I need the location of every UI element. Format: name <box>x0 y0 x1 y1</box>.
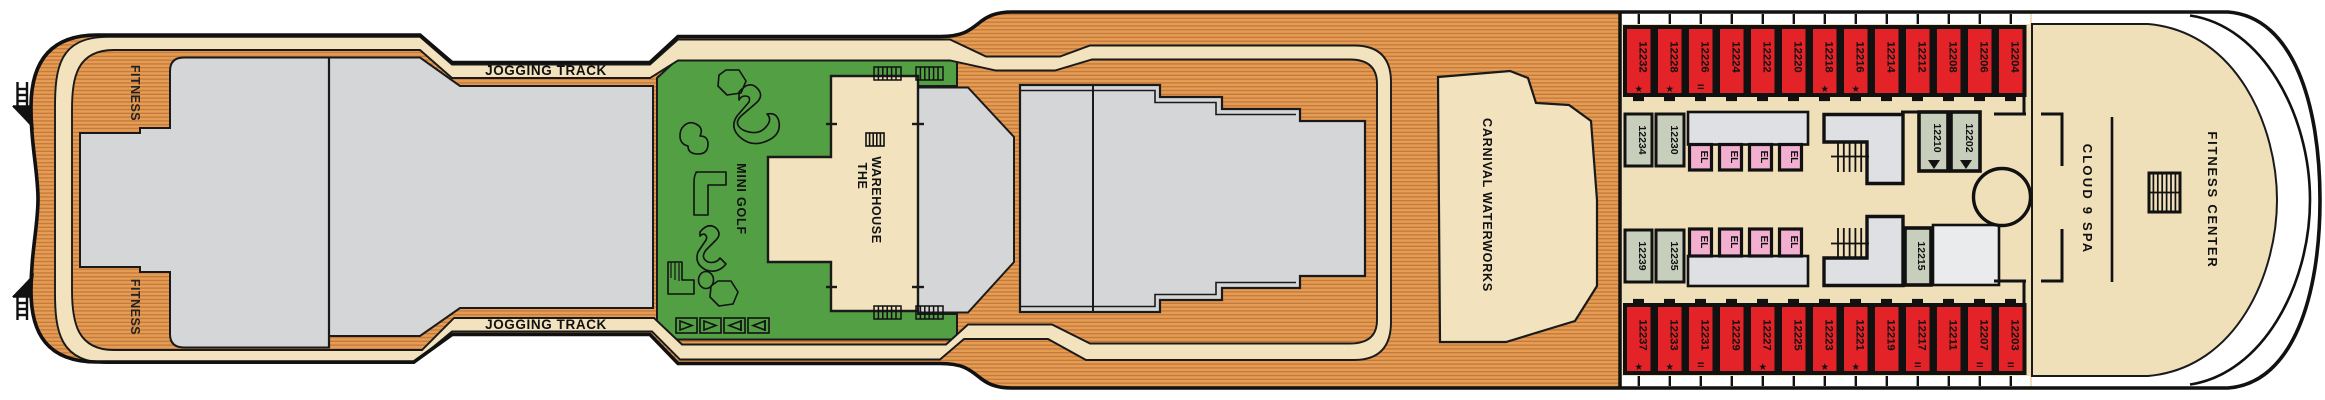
svg-text:12222: 12222 <box>1761 41 1773 72</box>
svg-text:THE: THE <box>855 163 869 190</box>
svg-text:12214: 12214 <box>1885 41 1897 73</box>
svg-text:EL: EL <box>1698 236 1709 249</box>
svg-text:★: ★ <box>1635 84 1644 95</box>
svg-text:EL: EL <box>1758 236 1769 249</box>
svg-text:12234: 12234 <box>1636 125 1648 154</box>
svg-text:12235: 12235 <box>1668 241 1680 270</box>
svg-text:EL: EL <box>1788 151 1799 164</box>
svg-text:EL: EL <box>1728 151 1739 164</box>
svg-text:★: ★ <box>1821 84 1830 95</box>
svg-text:EL: EL <box>1758 151 1769 164</box>
svg-text:12224: 12224 <box>1730 41 1742 73</box>
svg-text:12219: 12219 <box>1885 319 1897 350</box>
svg-text:12212: 12212 <box>1916 41 1928 72</box>
svg-text:12223: 12223 <box>1823 319 1835 350</box>
svg-text:WAREHOUSE: WAREHOUSE <box>869 156 883 243</box>
svg-text:12217: 12217 <box>1916 319 1928 350</box>
svg-text:12230: 12230 <box>1668 125 1680 154</box>
svg-text:★: ★ <box>1821 362 1830 373</box>
svg-text:12218: 12218 <box>1823 41 1835 72</box>
svg-text:★: ★ <box>1759 362 1768 373</box>
svg-text:12233: 12233 <box>1668 319 1680 350</box>
svg-text:12226: 12226 <box>1699 41 1711 72</box>
svg-text:12229: 12229 <box>1730 319 1742 350</box>
svg-text:=: = <box>1697 358 1704 372</box>
svg-text:12211: 12211 <box>1947 320 1959 351</box>
svg-text:MINI GOLF: MINI GOLF <box>734 163 748 235</box>
svg-text:12231: 12231 <box>1699 319 1711 350</box>
svg-text:12220: 12220 <box>1792 41 1804 72</box>
svg-text:JOGGING TRACK: JOGGING TRACK <box>485 63 607 78</box>
svg-text:EL: EL <box>1788 236 1799 249</box>
svg-text:EL: EL <box>1728 236 1739 249</box>
svg-text:=: = <box>1697 80 1704 94</box>
svg-text:12210: 12210 <box>1931 123 1943 152</box>
svg-text:=: = <box>1914 358 1921 372</box>
svg-text:★: ★ <box>1852 362 1861 373</box>
svg-text:★: ★ <box>1635 362 1644 373</box>
svg-text:JOGGING TRACK: JOGGING TRACK <box>485 317 607 332</box>
svg-text:12228: 12228 <box>1668 41 1680 72</box>
svg-text:12216: 12216 <box>1854 41 1866 72</box>
svg-text:CARNIVAL WATERWORKS: CARNIVAL WATERWORKS <box>1480 118 1494 292</box>
svg-text:12204: 12204 <box>2009 41 2021 73</box>
svg-text:12237: 12237 <box>1637 319 1649 350</box>
svg-text:12227: 12227 <box>1761 319 1773 350</box>
svg-text:=: = <box>1976 358 1983 372</box>
svg-text:12203: 12203 <box>2009 319 2021 350</box>
svg-text:12225: 12225 <box>1792 319 1804 350</box>
svg-text:12239: 12239 <box>1636 241 1648 270</box>
svg-text:CLOUD 9 SPA: CLOUD 9 SPA <box>2080 144 2095 255</box>
svg-text:12208: 12208 <box>1947 41 1959 72</box>
svg-text:12206: 12206 <box>1978 41 1990 72</box>
svg-text:FITNESS: FITNESS <box>128 279 142 335</box>
svg-text:12221: 12221 <box>1854 319 1866 350</box>
svg-text:=: = <box>2007 358 2014 372</box>
svg-text:FITNESS CENTER: FITNESS CENTER <box>2205 131 2220 268</box>
svg-text:12207: 12207 <box>1978 319 1990 350</box>
svg-text:★: ★ <box>1666 84 1675 95</box>
svg-text:12215: 12215 <box>1915 241 1927 270</box>
svg-text:FITNESS: FITNESS <box>128 65 142 121</box>
svg-text:12202: 12202 <box>1963 123 1975 152</box>
svg-text:12232: 12232 <box>1637 41 1649 72</box>
svg-text:★: ★ <box>1852 84 1861 95</box>
svg-text:EL: EL <box>1698 151 1709 164</box>
svg-text:★: ★ <box>1666 362 1675 373</box>
